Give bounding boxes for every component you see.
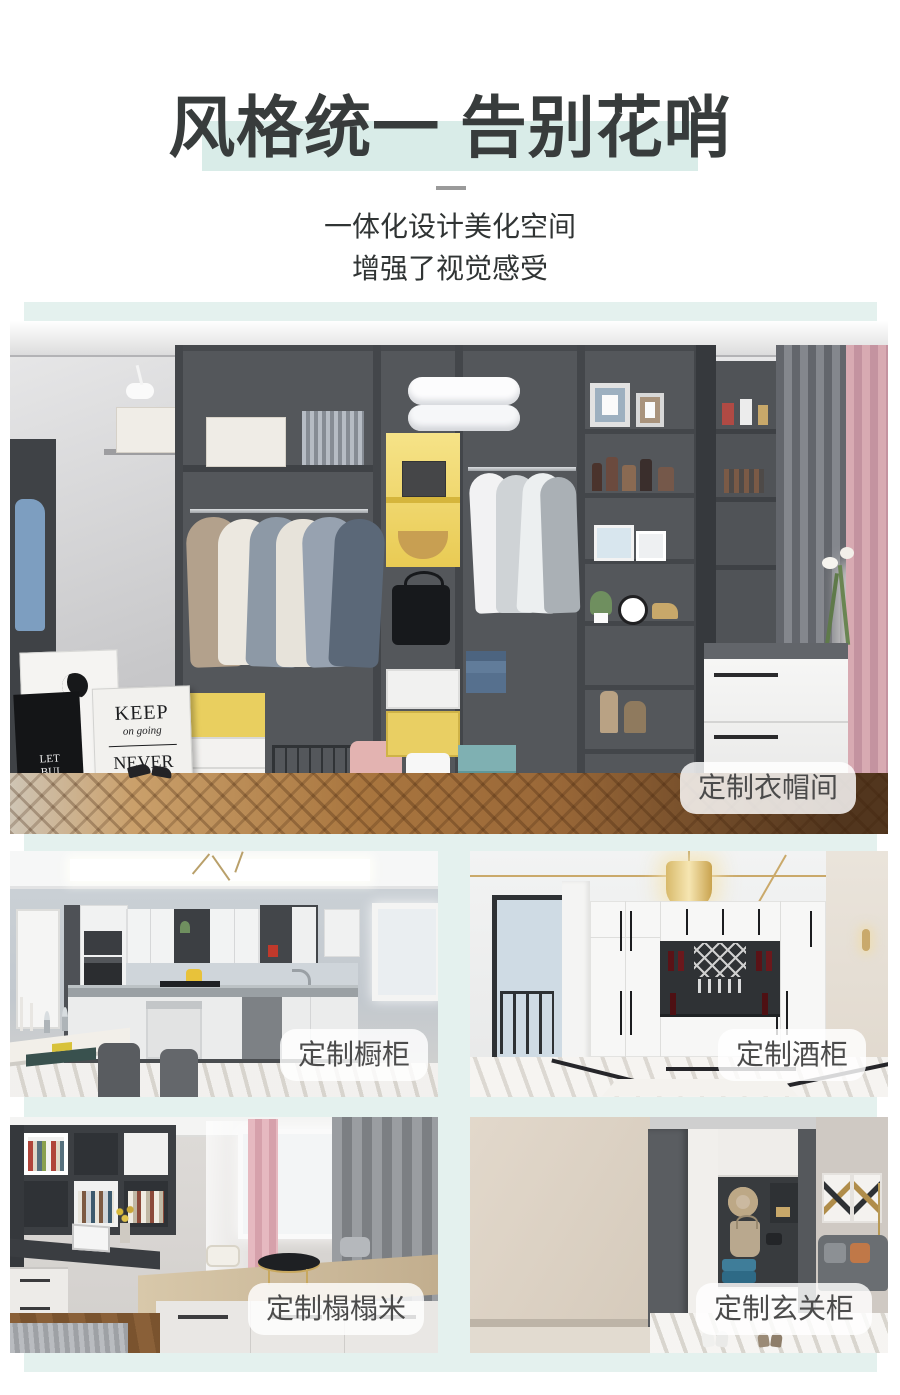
pink-curtain	[846, 345, 888, 823]
gold-deco	[776, 1207, 790, 1217]
door-seam	[625, 901, 626, 1057]
yellow-cubby-shelf	[386, 497, 460, 503]
gift-boxes	[402, 461, 446, 497]
white-storage-box	[116, 407, 182, 453]
cabinet-dark-column	[648, 1129, 688, 1329]
sofa-cushion	[824, 1243, 846, 1263]
vase	[600, 691, 618, 733]
bottle	[592, 463, 602, 491]
yellow-drawer	[183, 693, 265, 739]
poster-keep-line-1: KEEP	[93, 700, 190, 726]
framed-art	[594, 525, 634, 561]
bag-handle	[736, 1215, 758, 1229]
lily-bloom	[840, 547, 854, 559]
shelf-strip	[585, 685, 695, 690]
dining-chair	[98, 1043, 140, 1097]
books	[78, 1191, 114, 1223]
bookshelf-cell	[74, 1133, 118, 1175]
ceiling-cove	[70, 859, 370, 881]
dresser-handle	[714, 735, 778, 739]
bottle	[640, 459, 652, 491]
striped-rug	[10, 1323, 128, 1353]
page-subtitle: 一体化设计美化空间 增强了视觉感受	[0, 206, 900, 290]
cooktop	[160, 981, 220, 987]
towel-stack	[408, 377, 520, 405]
straw-hat	[728, 1187, 758, 1217]
photo-wine-cabinet: 定制酒柜	[470, 851, 888, 1097]
dresser-top	[704, 643, 848, 659]
subtitle-line-2: 增强了视觉感受	[0, 248, 900, 290]
dresser-seam	[704, 721, 848, 723]
sofa-cushion-orange	[850, 1243, 870, 1263]
microwave	[84, 931, 122, 955]
cabinet-handle	[620, 991, 622, 1035]
label-kitchen: 定制橱柜	[280, 1029, 428, 1081]
window	[372, 903, 438, 1001]
candlestick	[20, 997, 23, 1031]
flower-vase	[120, 1223, 130, 1243]
towel-stack	[408, 405, 520, 431]
hanging-rod	[190, 509, 368, 513]
photo-frame	[636, 393, 664, 427]
cabinet-handle	[686, 909, 688, 935]
stemware-rack	[698, 979, 742, 993]
red-cup	[268, 945, 278, 957]
cosmetic-red	[722, 403, 734, 425]
cabinet-handle	[722, 909, 724, 935]
shelf-strip	[585, 493, 695, 498]
framed-art	[636, 531, 666, 561]
photo-entry-cabinet: 定制玄关柜	[470, 1117, 888, 1353]
framed-art-x	[822, 1173, 852, 1223]
cushion	[340, 1237, 370, 1257]
gold-figurines	[652, 603, 678, 619]
side-cube	[770, 1183, 798, 1223]
open-shelf-dark	[174, 909, 210, 963]
photo-kitchen: 定制橱柜	[10, 851, 438, 1097]
drawer-handle	[20, 1307, 50, 1310]
shelf-plant	[180, 921, 190, 933]
subtitle-line-1: 一体化设计美化空间	[0, 206, 900, 248]
clock	[618, 595, 648, 625]
dining-chair	[160, 1049, 198, 1097]
hero-photo-cloakroom: LET BUI KEEP on going NEVER give up 定制衣帽…	[10, 321, 888, 834]
blue-towels	[722, 1259, 756, 1271]
center-white-drawer	[386, 669, 460, 709]
upper-door-seam	[234, 909, 235, 963]
hanging-rod	[468, 467, 576, 471]
cabinet-upper-white	[718, 1129, 804, 1177]
door-seam	[590, 937, 660, 938]
wall-cabinet-right	[324, 909, 360, 957]
tatami-handle	[178, 1315, 228, 1319]
white-box	[206, 417, 286, 467]
plant	[590, 591, 612, 615]
cabinet-handle	[630, 991, 632, 1035]
divider-dash	[436, 186, 466, 190]
hood-white-door	[292, 907, 316, 963]
wine-bottle	[762, 993, 768, 1015]
shelf-strip	[716, 565, 780, 570]
floor-lamp-pole	[878, 1183, 880, 1243]
wine-glass	[62, 1007, 68, 1031]
deco-deer	[126, 383, 154, 399]
books	[28, 1141, 64, 1171]
label-entry-cabinet: 定制玄关柜	[696, 1283, 872, 1335]
center-yellow-drawer	[386, 711, 460, 757]
drawer-seam	[183, 767, 265, 769]
mesh-box	[302, 411, 364, 465]
dresser-handle	[714, 673, 778, 677]
wine-glass	[44, 1011, 50, 1033]
bookshelf-cell	[124, 1133, 168, 1175]
lily-bloom	[822, 557, 838, 569]
cosmetic-white	[740, 399, 752, 425]
wine-bottle	[766, 951, 772, 971]
handbag	[392, 585, 450, 645]
wine-bottle	[668, 951, 674, 971]
gray-base-cab	[242, 997, 282, 1063]
laptop	[72, 1224, 110, 1253]
plant-pot	[594, 613, 608, 623]
poster-keep-line-2: on going	[94, 723, 190, 738]
poster-side-text-1: LET	[39, 753, 60, 766]
label-tatami: 定制榻榻米	[248, 1283, 424, 1335]
vase	[624, 701, 646, 733]
shelf-strip	[716, 429, 780, 434]
page-title: 风格统一 告别花哨	[0, 74, 900, 171]
cabinet-handle	[810, 911, 812, 947]
label-cloakroom: 定制衣帽间	[680, 762, 856, 814]
shelf-strip	[716, 497, 780, 502]
candlestick	[30, 1003, 33, 1031]
label-wine-cabinet: 定制酒柜	[718, 1029, 866, 1081]
bottle	[658, 467, 674, 491]
cloakroom-scene: LET BUI KEEP on going NEVER give up	[10, 321, 888, 834]
brush-set	[724, 469, 764, 493]
upper-door-seam	[150, 909, 151, 963]
coat	[328, 518, 386, 668]
photo-frame	[590, 383, 630, 427]
blue-garment	[15, 499, 45, 631]
folded-jeans	[466, 651, 506, 693]
teal-box	[458, 745, 516, 771]
shelf-strip	[585, 749, 695, 754]
baseboard	[470, 1319, 650, 1327]
blue-towels	[722, 1271, 756, 1283]
cushion	[206, 1245, 240, 1267]
yellow-flowers	[112, 1203, 138, 1225]
cabinet-handle	[620, 911, 622, 951]
wine-lattice	[694, 943, 746, 977]
cabinet-handle	[758, 909, 760, 935]
binoculars	[766, 1233, 782, 1245]
cosmetic-gold	[758, 405, 768, 425]
drawer-handle	[20, 1279, 50, 1282]
wine-bottle	[756, 951, 762, 971]
bookshelf-cell	[24, 1181, 68, 1227]
bottle	[622, 465, 636, 491]
beige-wall	[470, 1117, 650, 1353]
bottle	[606, 457, 618, 491]
wine-bottle	[670, 993, 676, 1015]
shirt	[540, 476, 581, 613]
balcony-railing	[500, 991, 554, 1054]
wall-sconce	[862, 929, 870, 951]
beige-floor	[470, 1327, 650, 1353]
wine-bottle	[678, 951, 684, 971]
photo-tatami: 定制榻榻米	[10, 1117, 438, 1353]
shelf-strip	[585, 429, 695, 434]
cabinet-handle	[630, 911, 632, 951]
